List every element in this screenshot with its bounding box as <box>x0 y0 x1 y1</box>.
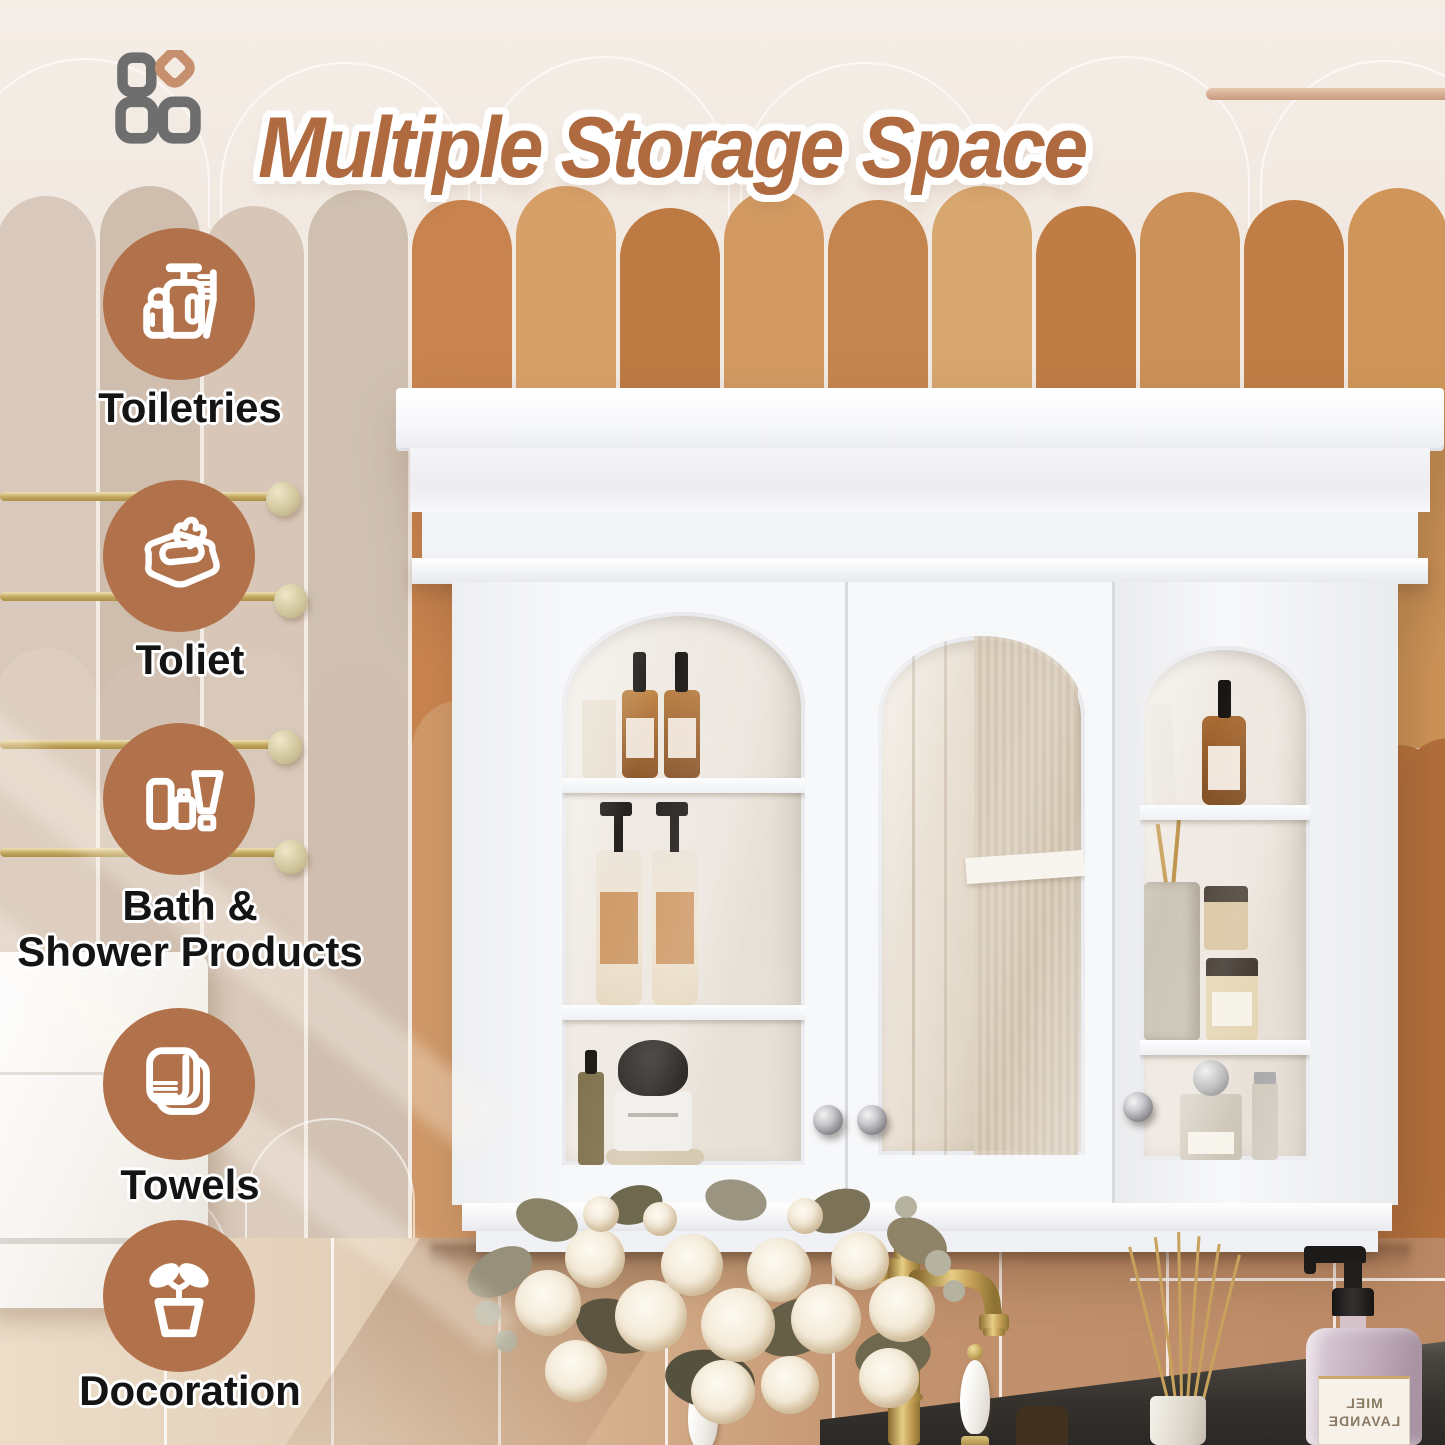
wet-wipes-icon <box>130 507 228 605</box>
amber-spray-bottle <box>622 690 658 778</box>
textured-vase <box>1144 882 1200 1040</box>
cabinet-shelf <box>1140 1040 1310 1055</box>
round-jar-body <box>614 1091 692 1151</box>
feature-label: Toiletries <box>0 385 388 431</box>
rose <box>831 1232 889 1290</box>
perfume-round-cap <box>1193 1060 1229 1096</box>
bottle-cap <box>675 652 688 692</box>
rose <box>761 1356 819 1414</box>
round-box <box>606 1149 704 1165</box>
feature-circle <box>103 723 255 875</box>
rose <box>859 1348 919 1408</box>
bottle-label <box>668 718 696 758</box>
perfume-label <box>1188 1132 1234 1154</box>
soap-pump-stem <box>1344 1260 1362 1290</box>
cabinet-crown-top <box>396 388 1444 448</box>
dropper-cap <box>585 1050 597 1074</box>
soap-pump-nozzle <box>1304 1260 1316 1274</box>
rose <box>545 1340 607 1402</box>
bottle-label <box>600 892 638 964</box>
center-door-mirror[interactable] <box>878 636 1085 1155</box>
towels-icon <box>130 1035 228 1133</box>
feature-towels: Towels <box>0 1008 380 1218</box>
jar-lid <box>1206 958 1258 976</box>
brush-handle <box>1171 820 1181 886</box>
soap-pump-bottle: MIEL LAVANDE <box>1298 1238 1430 1445</box>
feature-label: Towels <box>0 1162 388 1208</box>
eucalyptus <box>925 1250 951 1276</box>
soap-pump-collar <box>1332 1288 1374 1316</box>
bottle-label <box>626 718 654 758</box>
leaf <box>702 1174 771 1226</box>
feature-circle <box>103 480 255 632</box>
feature-label-line1: Bath & <box>0 883 388 929</box>
feature-toiletries: Toiletries <box>0 228 380 438</box>
feature-circle <box>103 228 255 380</box>
door-seam <box>845 582 848 1205</box>
pump-head <box>600 802 632 816</box>
mirror-fluted-glass-reflection <box>974 636 1078 1155</box>
spray-cap <box>1254 1072 1276 1084</box>
eucalyptus <box>475 1300 501 1326</box>
pump-stem <box>670 814 679 852</box>
rose <box>515 1270 581 1336</box>
jar-dome-lid <box>618 1040 688 1096</box>
eucalyptus <box>495 1330 517 1352</box>
cabinet-crown-ledge <box>412 558 1428 584</box>
feature-label: Toliet <box>0 637 388 683</box>
door-seam <box>1112 582 1115 1205</box>
eucalyptus <box>943 1280 965 1302</box>
dropper-cap <box>1218 680 1231 718</box>
white-tube <box>1147 703 1176 805</box>
soap-bottle-label: MIEL LAVANDE <box>1318 1376 1410 1445</box>
mirror-reflection-seam <box>912 636 915 1155</box>
mirror-reflection-seam <box>944 636 947 1155</box>
cabinet-shelf <box>1140 805 1310 820</box>
left-door-glass-window[interactable] <box>562 612 805 1165</box>
jar-label-text <box>628 1113 678 1117</box>
cabinet-shelf <box>562 1005 805 1020</box>
rose <box>661 1234 723 1296</box>
dropper-bottle <box>578 1072 604 1165</box>
rose-bud <box>787 1198 823 1234</box>
rose-bud <box>583 1196 619 1232</box>
amber-spray-bottle <box>664 690 700 778</box>
jar-label <box>1212 992 1252 1026</box>
left-door-knob[interactable] <box>813 1105 843 1135</box>
soap-label-line2: LAVANDE <box>1328 1412 1401 1430</box>
right-door-knob[interactable] <box>1123 1092 1153 1122</box>
bottle-label <box>1208 746 1240 790</box>
soap-label-line1: MIEL <box>1345 1394 1382 1412</box>
rose-bud <box>643 1202 677 1236</box>
center-door-knob[interactable] <box>857 1105 887 1135</box>
right-door-glass-window[interactable] <box>1140 646 1310 1160</box>
reed-diffuser-cup <box>1150 1396 1206 1445</box>
bottle-label <box>656 892 694 964</box>
plant-pot-icon <box>130 1247 228 1345</box>
small-spray-bottle <box>1252 1082 1278 1160</box>
bath-shower-products-icon <box>130 750 228 848</box>
feature-label: Docoration <box>0 1368 388 1414</box>
pump-soap-bottle <box>652 850 698 1005</box>
rose <box>791 1284 861 1354</box>
flower-bouquet <box>455 1180 995 1445</box>
feature-bath-shower-products: Bath & Shower Products <box>0 723 380 973</box>
wall-rail <box>1206 88 1445 100</box>
toiletries-icon <box>130 255 228 353</box>
bottle-cap <box>633 652 646 692</box>
rose <box>701 1288 775 1362</box>
pump-stem <box>614 814 623 852</box>
jar-lid <box>1204 886 1248 902</box>
eucalyptus <box>895 1196 917 1218</box>
perfume-bottle <box>1180 1094 1242 1160</box>
rose <box>691 1360 755 1424</box>
candle-jar <box>582 700 616 778</box>
feature-circle <box>103 1008 255 1160</box>
feature-label-line2: Shower Products <box>0 929 388 975</box>
page-title: Multiple Storage Space <box>258 98 1085 198</box>
pump-head <box>656 802 688 816</box>
amber-dropper-bottle <box>1202 716 1246 805</box>
four-squares-logo-icon <box>110 50 206 146</box>
feature-docoration: Docoration <box>0 1220 380 1430</box>
brush-handle <box>1156 824 1169 886</box>
rose <box>565 1228 625 1288</box>
rose <box>869 1276 935 1342</box>
cabinet-shelf <box>562 778 805 793</box>
feature-circle <box>103 1220 255 1372</box>
product-infographic: MIEL LAVANDE Multiple Storage Space <box>0 0 1445 1445</box>
wall-tile <box>1400 738 1445 1260</box>
jar-with-label <box>1206 958 1258 1040</box>
small-jar <box>1204 886 1248 950</box>
pump-soap-bottle <box>596 850 642 1005</box>
feature-toliet: Toliet <box>0 480 380 690</box>
cabinet-crown-cove <box>410 448 1430 512</box>
cabinet-crown-frieze <box>422 512 1418 558</box>
